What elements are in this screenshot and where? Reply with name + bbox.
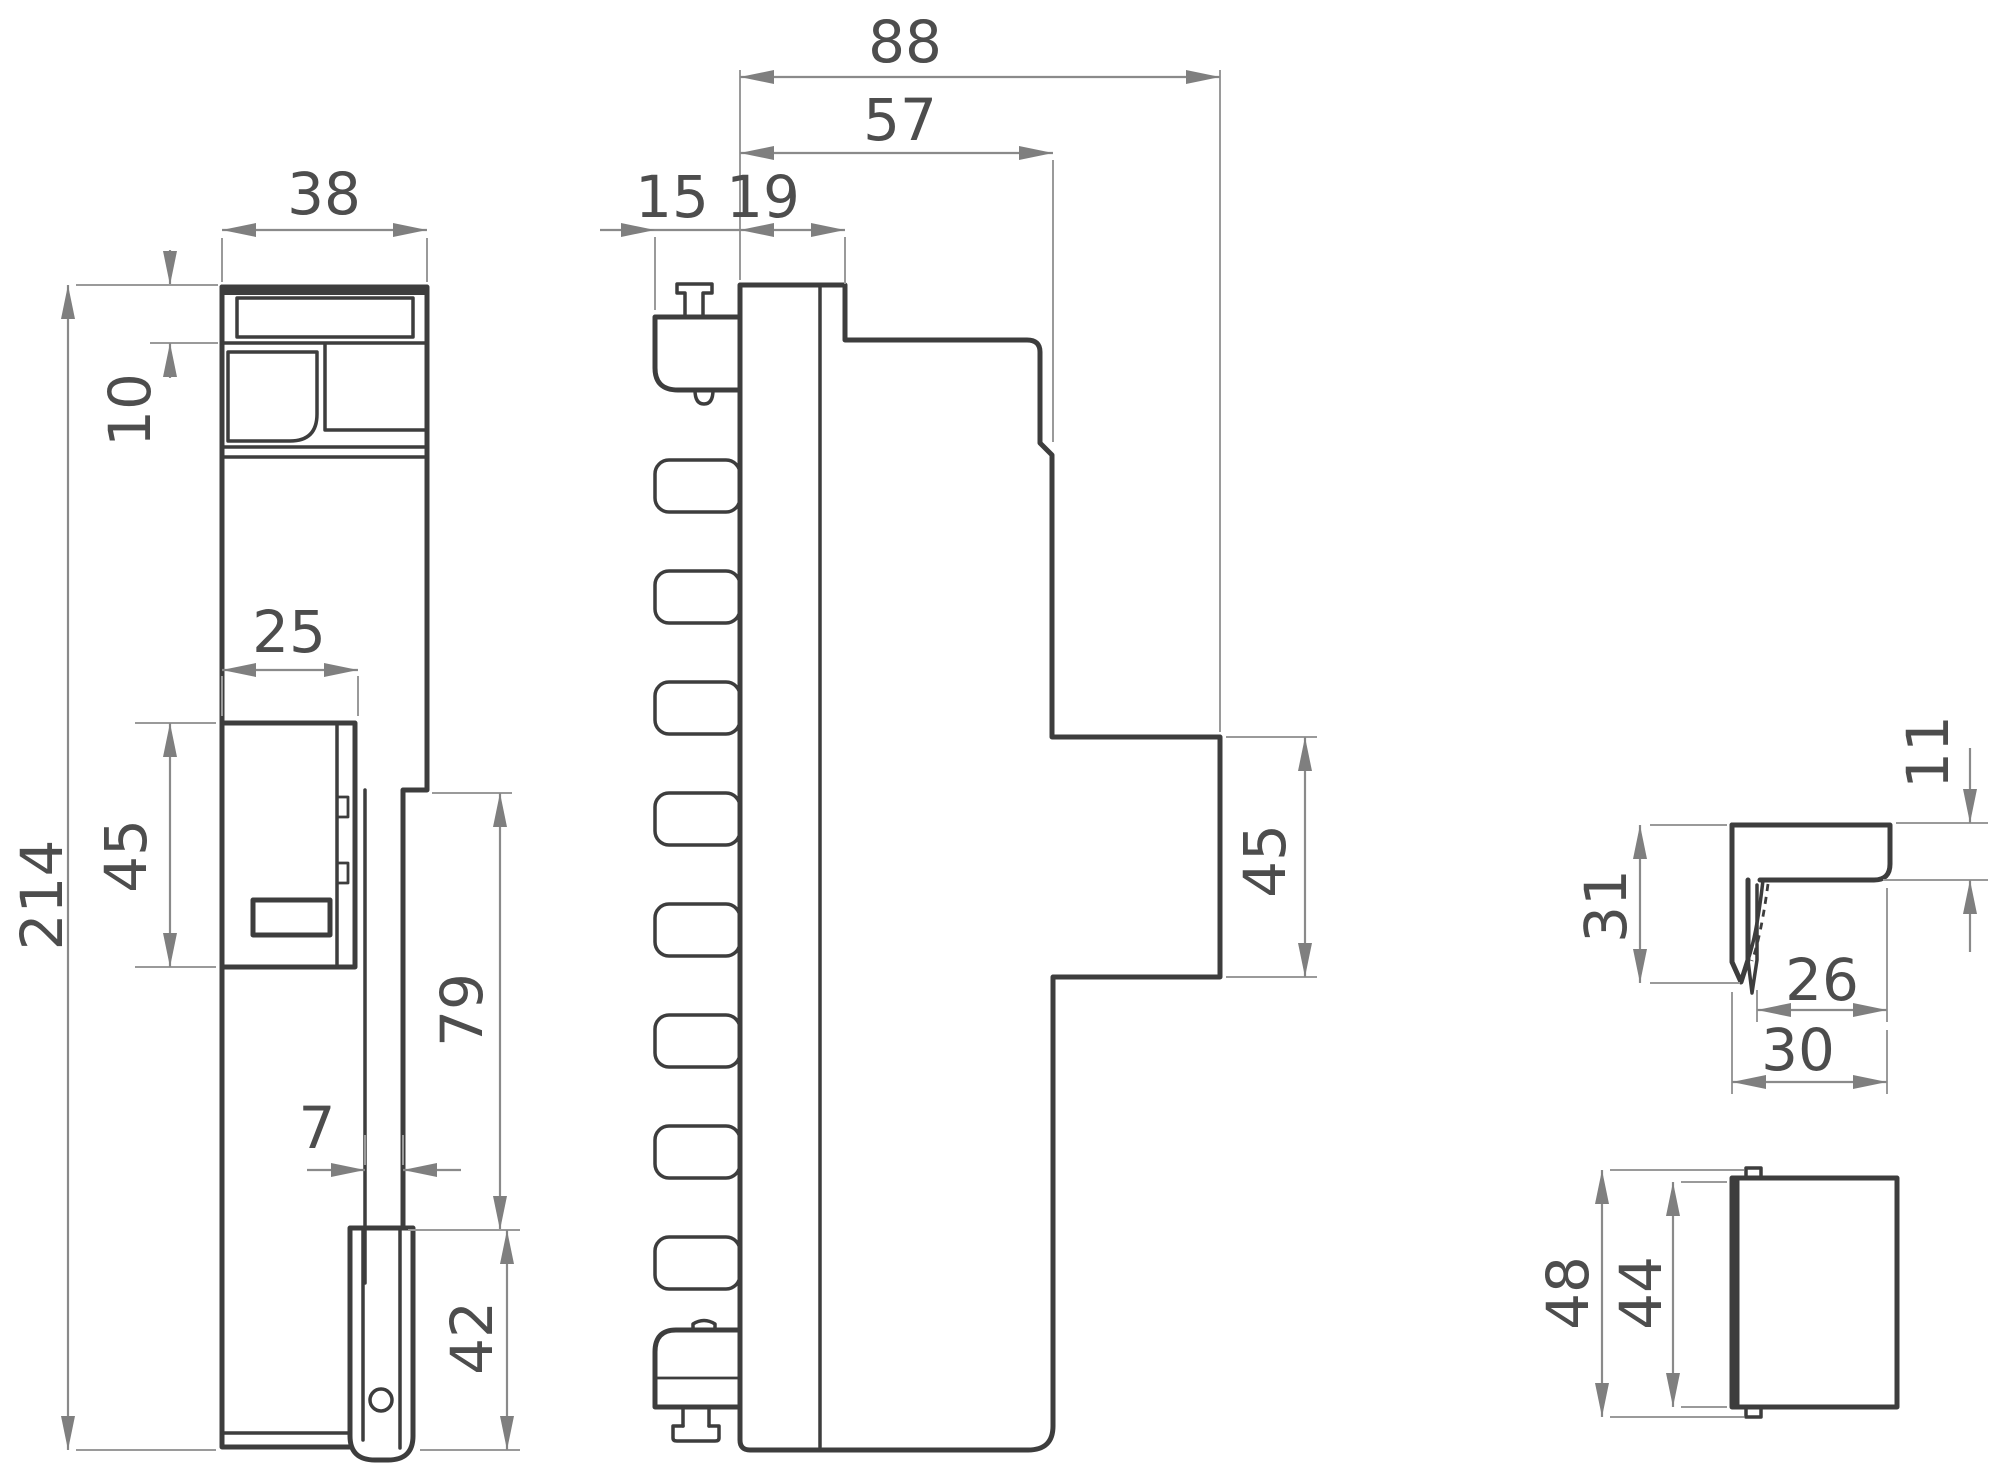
- dim-bracket-inner-width: 26: [1785, 946, 1859, 1014]
- dim-front-block-width: 25: [252, 598, 326, 666]
- side-dimensions: 88 57 15 19 45: [600, 8, 1317, 977]
- bracket-plate: [1732, 825, 1748, 982]
- side-body-outline: [740, 285, 1220, 1450]
- side-foot-stem: [683, 1407, 709, 1426]
- side-foot-flange: [673, 1426, 719, 1441]
- cover-dimensions: 48 44: [1534, 1170, 1744, 1417]
- dim-front-bar-width: 7: [299, 1094, 336, 1162]
- dim-side-overall-depth: 88: [868, 8, 942, 76]
- front-label-window: [253, 900, 330, 935]
- side-fin-6: [655, 1015, 740, 1067]
- dim-side-tab-height: 45: [1231, 824, 1299, 898]
- side-fin-8: [655, 1237, 740, 1289]
- front-view: 38 10 214 45 25 79 7: [8, 160, 520, 1460]
- bracket-view: 11 31 26 30: [1572, 715, 1988, 1094]
- dim-front-latch-height: 42: [438, 1301, 506, 1375]
- technical-drawing: 38 10 214 45 25 79 7: [0, 0, 2000, 1475]
- dim-cover-inner-height: 44: [1607, 1256, 1675, 1330]
- dim-ext-31: [1650, 825, 1740, 983]
- dim-ext-25: [222, 676, 358, 716]
- dim-bracket-lip-height: 11: [1894, 715, 1962, 789]
- dim-side-front-depth: 19: [726, 163, 800, 231]
- front-double-step-lines: [222, 447, 427, 457]
- front-body-left-bottom: [222, 287, 350, 1447]
- side-top-clip-block: [655, 317, 740, 390]
- front-latch-hole: [370, 1389, 392, 1411]
- drawing-canvas: 38 10 214 45 25 79 7: [0, 0, 2000, 1475]
- front-cap-top-band: [224, 288, 426, 295]
- dim-front-overall-width: 38: [287, 160, 361, 228]
- side-fin-7: [655, 1126, 740, 1178]
- front-terminal-block: [222, 723, 355, 967]
- dim-ext-7: [365, 1135, 403, 1165]
- front-latch-inner-lines: [363, 1228, 400, 1448]
- cover-outline: [1732, 1178, 1897, 1407]
- side-fins: [655, 460, 740, 1289]
- dim-cover-outer-height: 48: [1534, 1256, 1602, 1330]
- front-left-module: [228, 352, 317, 441]
- dim-front-cap-height: 10: [96, 373, 164, 447]
- bracket-bar-outline: [1732, 825, 1890, 880]
- dim-ext-38: [222, 238, 427, 282]
- side-bottom-clip-block: [655, 1330, 740, 1407]
- dim-side-body-depth: 57: [863, 86, 937, 154]
- side-top-clip-knob: [677, 284, 712, 317]
- side-view: 88 57 15 19 45: [600, 8, 1317, 1450]
- cover-top-tab: [1746, 1168, 1761, 1178]
- dim-front-overall-height: 214: [8, 840, 76, 951]
- dim-ext-88: [740, 70, 1220, 732]
- bracket-dimensions: 11 31 26 30: [1572, 715, 1988, 1094]
- side-fin-2: [655, 571, 740, 623]
- cover-bottom-tab: [1746, 1407, 1761, 1417]
- side-fin-4: [655, 793, 740, 845]
- cover-view: 48 44: [1534, 1168, 1897, 1417]
- side-fin-3: [655, 682, 740, 734]
- dim-ext-44: [1681, 1182, 1727, 1407]
- side-fin-5: [655, 904, 740, 956]
- dim-bracket-height: 31: [1572, 869, 1640, 943]
- dim-ext-11: [1883, 823, 1988, 880]
- dim-bracket-width: 30: [1761, 1016, 1835, 1084]
- front-cap-inner-window: [237, 298, 413, 337]
- dim-ext-10: [82, 285, 218, 343]
- front-section-divider: [222, 343, 427, 430]
- dim-front-block-height: 45: [92, 819, 160, 893]
- dim-front-step-height: 79: [428, 973, 496, 1047]
- side-fin-1: [655, 460, 740, 512]
- front-latch-outline: [350, 1228, 413, 1460]
- dim-side-fin-depth: 15: [635, 163, 709, 231]
